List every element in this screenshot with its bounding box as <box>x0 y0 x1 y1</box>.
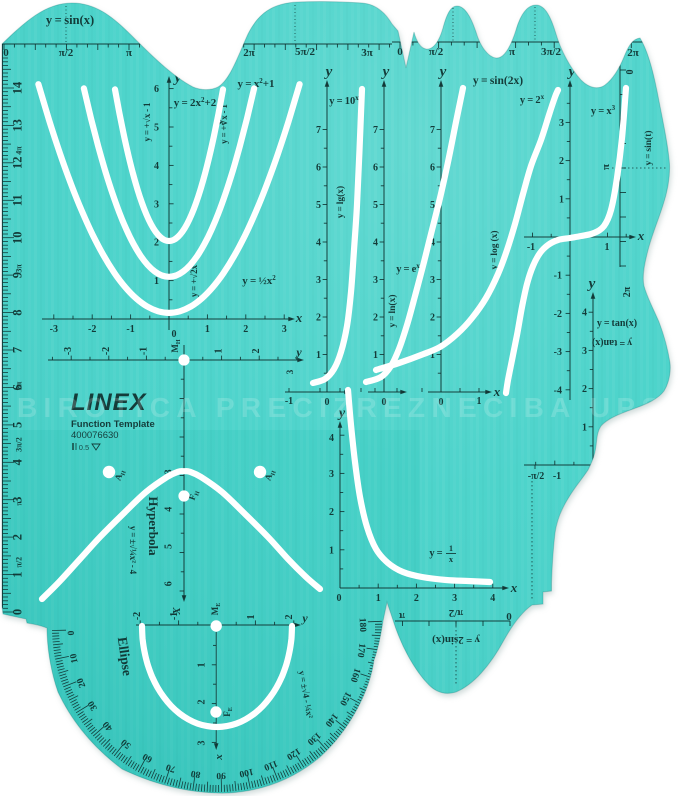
svg-text:y: y <box>324 64 333 80</box>
svg-text:y: y <box>300 611 308 625</box>
svg-text:2π: 2π <box>622 286 633 297</box>
svg-text:-2: -2 <box>101 347 112 355</box>
svg-text:7: 7 <box>316 125 321 136</box>
svg-text:1: 1 <box>373 350 378 361</box>
svg-text:3π/2: 3π/2 <box>15 437 24 452</box>
svg-text:1: 1 <box>376 593 381 604</box>
svg-text:π: π <box>15 501 24 506</box>
svg-text:y = ln(x): y = ln(x) <box>387 295 398 328</box>
svg-text:-3: -3 <box>50 324 58 335</box>
svg-text:y = sin(x): y = sin(x) <box>46 13 94 27</box>
svg-text:y = ±√¼x² - 4: y = ±√¼x² - 4 <box>128 526 138 575</box>
svg-text:-1: -1 <box>527 242 535 253</box>
svg-text:2π: 2π <box>627 47 639 59</box>
svg-text:x: x <box>449 555 453 564</box>
svg-text:3: 3 <box>329 469 334 480</box>
svg-text:3: 3 <box>285 369 295 374</box>
svg-text:y: y <box>381 64 390 80</box>
svg-text:1: 1 <box>559 194 564 205</box>
svg-text:x: x <box>510 580 518 595</box>
svg-text:400076630: 400076630 <box>71 430 119 441</box>
svg-text:4: 4 <box>164 507 175 512</box>
svg-text:4: 4 <box>373 238 378 249</box>
svg-text:12: 12 <box>11 157 25 170</box>
svg-text:y = 2x2+2: y = 2x2+2 <box>174 96 217 109</box>
svg-text:-2: -2 <box>132 612 143 620</box>
svg-text:180: 180 <box>357 618 367 633</box>
svg-text:7: 7 <box>430 125 435 136</box>
svg-text:2: 2 <box>284 615 295 620</box>
svg-text:3π/2: 3π/2 <box>541 46 562 58</box>
svg-text:0: 0 <box>3 47 9 59</box>
svg-text:y =: y = <box>429 548 442 559</box>
svg-text:3: 3 <box>559 118 564 129</box>
svg-text:-2: -2 <box>554 309 562 320</box>
svg-text:4: 4 <box>154 161 159 172</box>
svg-text:5: 5 <box>164 544 175 549</box>
svg-text:x: x <box>637 228 645 243</box>
svg-text:y = +√2x: y = +√2x <box>189 264 199 297</box>
svg-text:7: 7 <box>11 347 25 353</box>
svg-text:y = sin(2x): y = sin(2x) <box>473 75 523 87</box>
svg-text:y: y <box>587 276 596 292</box>
svg-text:Hyperbola: Hyperbola <box>146 496 161 556</box>
svg-text:π: π <box>399 610 405 622</box>
svg-text:-π/2: -π/2 <box>528 471 545 482</box>
svg-text:3: 3 <box>430 275 435 286</box>
svg-text:5: 5 <box>373 200 378 211</box>
svg-text:3: 3 <box>316 275 321 286</box>
svg-text:90: 90 <box>216 770 226 780</box>
svg-text:80: 80 <box>190 768 201 779</box>
svg-text:y = lg(x): y = lg(x) <box>335 186 346 218</box>
svg-text:-1: -1 <box>554 271 562 282</box>
svg-text:π: π <box>509 46 515 58</box>
svg-text:π: π <box>600 164 612 170</box>
svg-text:0: 0 <box>337 593 342 604</box>
svg-text:3π: 3π <box>15 264 24 273</box>
svg-text:1: 1 <box>605 242 610 253</box>
svg-text:7: 7 <box>373 125 378 136</box>
svg-text:6: 6 <box>316 163 321 174</box>
svg-text:4π: 4π <box>15 146 24 155</box>
svg-text:0: 0 <box>625 70 636 75</box>
svg-text:y = ½x2: y = ½x2 <box>242 274 276 287</box>
svg-text:2: 2 <box>316 313 321 324</box>
svg-text:π/2: π/2 <box>59 47 74 59</box>
svg-text:2π: 2π <box>15 381 24 390</box>
svg-text:2: 2 <box>559 156 564 167</box>
svg-text:8: 8 <box>11 309 25 315</box>
svg-text:-1: -1 <box>126 324 134 335</box>
svg-text:5: 5 <box>316 200 321 211</box>
svg-text:3: 3 <box>154 199 159 210</box>
svg-text:4: 4 <box>490 593 495 604</box>
svg-text:2: 2 <box>430 313 435 324</box>
svg-text:6: 6 <box>154 84 159 95</box>
svg-text:4: 4 <box>329 433 334 444</box>
svg-text:y = +√x - 1: y = +√x - 1 <box>142 102 152 141</box>
svg-text:3: 3 <box>282 324 287 335</box>
svg-text:y = tan(x): y = tan(x) <box>597 318 637 329</box>
svg-text:y = 10x: y = 10x <box>329 94 359 107</box>
svg-text:y = 2sin(x): y = 2sin(x) <box>432 634 480 646</box>
svg-text:1: 1 <box>329 545 334 556</box>
svg-text:11: 11 <box>11 194 25 206</box>
svg-text:-2: -2 <box>88 324 96 335</box>
svg-text:-1: -1 <box>138 347 149 355</box>
svg-text:2: 2 <box>243 324 248 335</box>
svg-text:1: 1 <box>582 422 587 433</box>
svg-text:14: 14 <box>11 81 25 94</box>
svg-text:10: 10 <box>11 231 25 244</box>
svg-text:BIROTICA PRECIZREZNECIBA UPS: BIROTICA PRECIZREZNECIBA UPS <box>17 392 662 423</box>
svg-text:2: 2 <box>373 313 378 324</box>
svg-text:4: 4 <box>316 238 321 249</box>
svg-text:4: 4 <box>582 308 587 319</box>
svg-text:π: π <box>126 47 132 59</box>
svg-text:0: 0 <box>172 329 177 340</box>
svg-text:0: 0 <box>506 610 512 622</box>
svg-text:2: 2 <box>414 593 419 604</box>
svg-text:-1: -1 <box>553 471 561 482</box>
svg-text:2: 2 <box>11 534 25 540</box>
svg-text:2π: 2π <box>243 47 255 59</box>
svg-text:5π/2: 5π/2 <box>295 46 316 58</box>
svg-text:4: 4 <box>11 458 25 465</box>
svg-text:3π: 3π <box>361 47 373 59</box>
svg-text:y: y <box>438 64 447 80</box>
svg-text:6: 6 <box>373 163 378 174</box>
svg-text:1: 1 <box>205 324 210 335</box>
svg-text:0: 0 <box>11 609 25 615</box>
svg-text:3: 3 <box>582 346 587 357</box>
svg-text:1: 1 <box>197 663 208 668</box>
svg-text:-3: -3 <box>63 347 74 355</box>
svg-text:1: 1 <box>11 571 25 577</box>
svg-text:6: 6 <box>430 163 435 174</box>
svg-text:1: 1 <box>154 276 159 287</box>
svg-text:5: 5 <box>154 123 159 134</box>
svg-text:y = sin(t): y = sin(t) <box>643 130 654 165</box>
svg-text:2: 2 <box>251 349 262 354</box>
svg-text:2: 2 <box>329 507 334 518</box>
svg-text:6: 6 <box>164 581 175 586</box>
svg-text:x: x <box>213 754 225 761</box>
svg-text:3: 3 <box>452 593 457 604</box>
svg-text:π/2: π/2 <box>15 557 24 568</box>
svg-text:y = log (x): y = log (x) <box>489 230 500 269</box>
svg-text:1: 1 <box>214 349 225 354</box>
svg-text:2: 2 <box>197 700 208 705</box>
svg-text:y: y <box>294 345 302 359</box>
svg-text:x: x <box>295 310 303 325</box>
svg-text:13: 13 <box>11 119 25 131</box>
svg-text:0: 0 <box>67 630 77 635</box>
svg-text:3: 3 <box>197 741 208 746</box>
svg-text:π/2: π/2 <box>448 607 463 619</box>
svg-text:170: 170 <box>355 643 367 659</box>
svg-text:-1: -1 <box>169 612 180 620</box>
svg-text:1: 1 <box>246 615 257 620</box>
svg-text:0.5: 0.5 <box>79 443 89 452</box>
svg-text:-3: -3 <box>554 347 562 358</box>
svg-text:1: 1 <box>316 350 321 361</box>
svg-text:3: 3 <box>373 275 378 286</box>
svg-text:1: 1 <box>449 544 453 553</box>
svg-text:y = tan(x): y = tan(x) <box>592 337 632 348</box>
